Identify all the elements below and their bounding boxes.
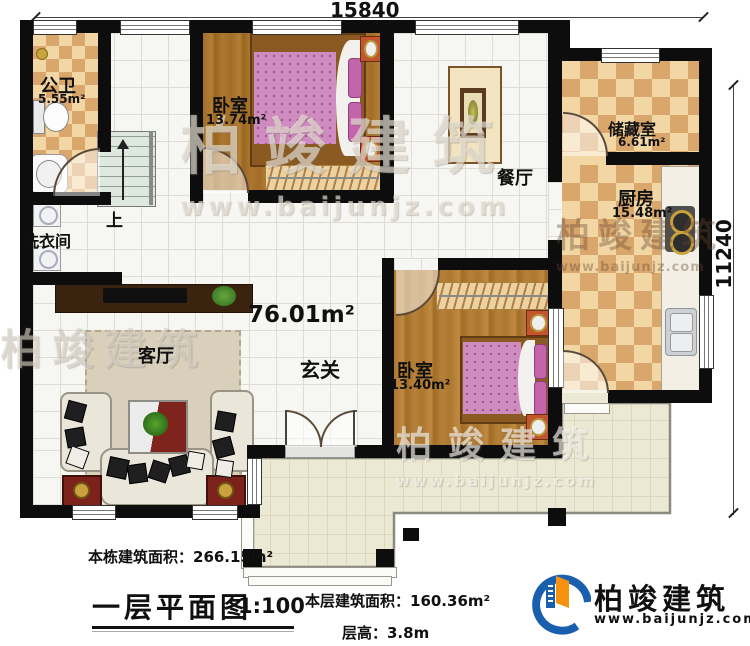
porch-column [376,549,394,567]
nightstand [360,136,382,162]
room-area-kitchen: 15.48m² [612,206,672,221]
room-label-dining: 餐厅 [497,164,533,190]
room-area-bedroom1: 13.74m² [206,113,266,128]
wardrobe [265,165,382,192]
stairs-railing [149,131,153,205]
room-area-bedroom2: 13.40m² [390,378,450,393]
hall-area: 76.01m² [248,302,355,328]
plant [212,286,236,306]
plan-title: 一层平面图 [92,586,252,626]
door-opening [394,258,438,270]
wall [98,20,111,152]
door-opening [548,182,562,240]
kitchen-counter [661,166,701,392]
room-label-living: 客厅 [138,342,174,368]
window [120,20,190,35]
bed-pillow [348,58,362,98]
wall [20,20,33,518]
window [192,505,238,520]
window [72,505,116,520]
building-area-text: 本栋建筑面积：266.15m² [88,546,273,567]
wall [190,20,203,192]
room-area-storage: 6.61m² [618,135,665,149]
brand-logo [527,568,591,636]
plan-title-underline [92,631,294,632]
nightstand [360,36,382,62]
terrace-column [403,528,419,541]
sofa-pillow [215,459,234,478]
window [33,20,77,35]
wall [382,258,394,458]
room-area-bathroom: 5.55m² [38,92,85,106]
wall [380,20,394,192]
bed-pillow [534,344,547,379]
stairs-arrow [122,148,124,200]
stairs-arrowhead [117,139,129,149]
entry-door-leaf [285,410,287,445]
wall [247,445,285,458]
bed-pillow [534,381,547,416]
plant [143,412,168,436]
kitchen-sink [665,308,697,356]
bed-blanket [463,342,521,414]
window [252,20,342,35]
bed-sheet [518,340,535,416]
logo-building-orange [556,576,569,608]
window [601,48,660,63]
porch-step [248,576,392,586]
sofa-pillow [214,410,236,432]
plan-scale: 1:100 [238,594,305,618]
kitchen-step [564,403,610,414]
sofa-pillow [64,426,86,448]
wall [20,272,122,285]
plan-title-underline [92,626,294,629]
top-dimension: 15840 [330,0,400,22]
floor-area-text: 本层建筑面积：160.36m² [305,590,490,611]
tv [103,288,187,303]
floor-height-text: 层高：3.8m [342,622,429,643]
washing-machine [33,202,61,227]
window [247,458,262,505]
terrace-column [548,508,566,526]
room-label-hall: 玄关 [300,354,340,383]
entry-door-leaf [353,410,355,445]
wall [382,445,562,458]
window [415,20,519,35]
faucet [36,48,48,60]
window [548,308,564,388]
room-label-laundry: 洗衣间 [23,228,71,252]
table-medallion [217,482,234,499]
toilet-bowl [43,102,69,132]
stairs-up-label: 上 [106,206,123,231]
window [699,295,714,369]
sofa-pillow [127,463,148,484]
brand-website: www.baijunjz.com [594,612,750,627]
right-dimension: 11240 [712,218,736,290]
table-runner [460,88,486,138]
table-medallion [73,482,90,499]
floor-plan-page: { "dimensions": { "top": "15840", "right… [0,0,750,646]
sofa-pillow [186,451,206,471]
wardrobe [436,282,550,310]
right-dimension-line [733,85,734,515]
bed-blanket [254,52,336,144]
